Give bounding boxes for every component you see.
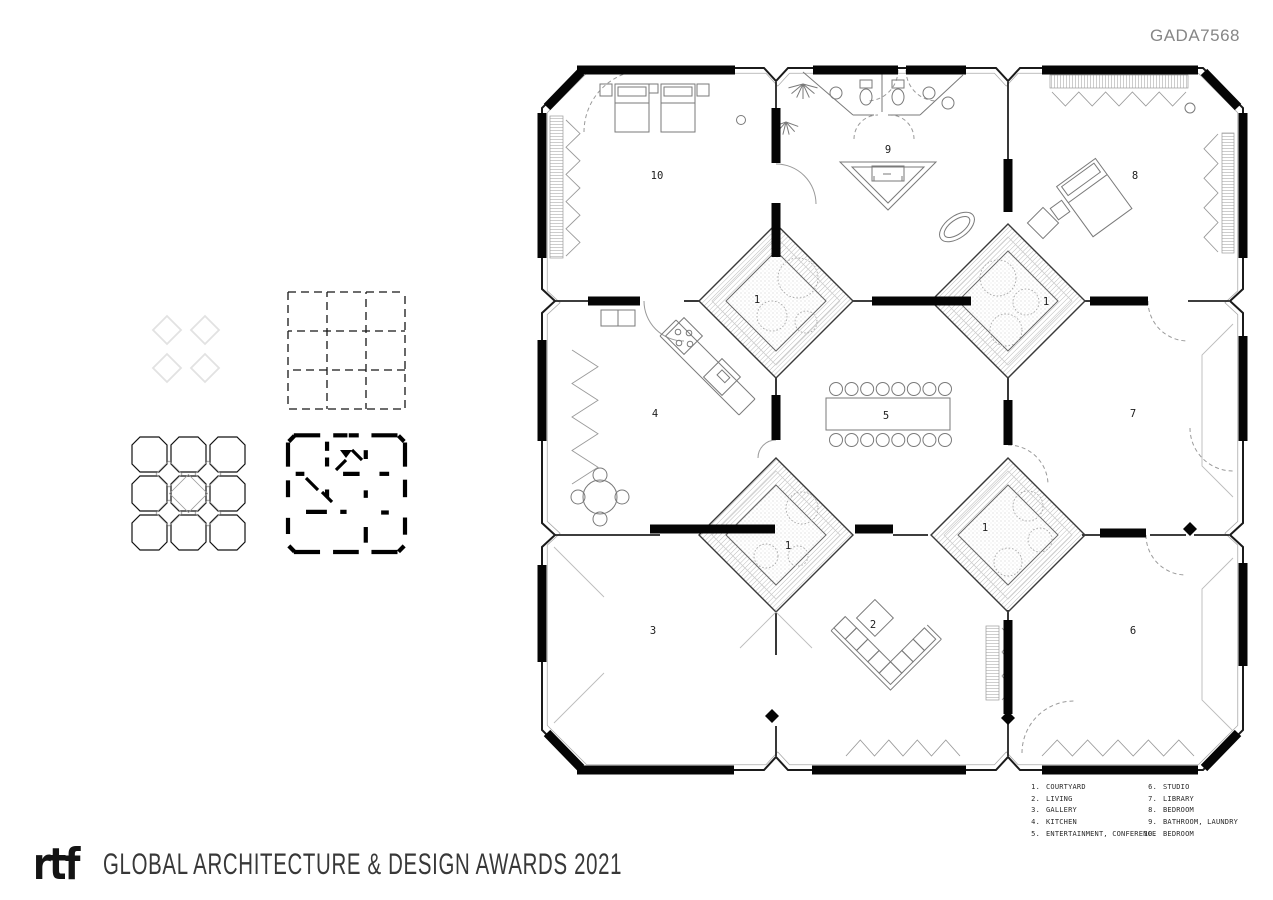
legend-item-label: LIVING — [1046, 794, 1073, 806]
room-label: 7 — [1130, 408, 1136, 420]
legend-item-label: LIBRARY — [1163, 794, 1194, 806]
room-label: 9 — [885, 144, 891, 156]
legend-column: 6.STUDIO7.LIBRARY8.BEDROOM9.BATHROOM, LA… — [1141, 782, 1238, 840]
rtf-logo: rtf — [33, 841, 79, 889]
legend-item: 7.LIBRARY — [1141, 794, 1238, 806]
legend-item-number: 1. — [1024, 782, 1040, 794]
legend-item: 4.KITCHEN — [1024, 817, 1156, 829]
legend-item-number: 5. — [1024, 829, 1040, 841]
room-label: 3 — [650, 625, 656, 637]
legend-item-label: GALLERY — [1046, 805, 1077, 817]
legend-item-label: STUDIO — [1163, 782, 1190, 794]
legend-item-label: BEDROOM — [1163, 829, 1194, 841]
room-label: 10 — [651, 170, 664, 182]
legend-item-number: 7. — [1141, 794, 1157, 806]
legend-item-label: BATHROOM, LAUNDRY — [1163, 817, 1238, 829]
legend-item: 8.BEDROOM — [1141, 805, 1238, 817]
legend-item-label: ENTERTAINMENT, CONFERENCE — [1046, 829, 1156, 841]
room-label: 2 — [870, 619, 876, 631]
diagram-courtyard-diamonds-icon — [153, 316, 219, 382]
presentation-board: GADA7568 — [0, 0, 1273, 900]
legend-item: 5.ENTERTAINMENT, CONFERENCE — [1024, 829, 1156, 841]
floor-plan-drawing: 10984573261111 — [0, 0, 1273, 900]
legend-item-number: 10. — [1141, 829, 1157, 841]
room-label: 5 — [883, 410, 889, 422]
legend-item-number: 4. — [1024, 817, 1040, 829]
award-title: GLOBAL ARCHITECTURE & DESIGN AWARDS 2021 — [103, 848, 622, 882]
legend-item: 3.GALLERY — [1024, 805, 1156, 817]
room-label: 8 — [1132, 170, 1138, 182]
legend-item: 2.LIVING — [1024, 794, 1156, 806]
legend-item-number: 8. — [1141, 805, 1157, 817]
legend-item-label: COURTYARD — [1046, 782, 1086, 794]
diagram-plan-grid-icon — [132, 437, 245, 550]
folding-door-lines — [566, 92, 1218, 756]
legend-item-number: 2. — [1024, 794, 1040, 806]
room-label: 1 — [982, 522, 988, 534]
courtyard-diamonds — [699, 224, 1085, 612]
legend-column: 1.COURTYARD2.LIVING3.GALLERY4.KITCHEN5.E… — [1024, 782, 1156, 840]
legend-item: 9.BATHROOM, LAUNDRY — [1141, 817, 1238, 829]
legend-item: 10.BEDROOM — [1141, 829, 1238, 841]
legend-item: 1.COURTYARD — [1024, 782, 1156, 794]
room-label: 1 — [754, 294, 760, 306]
legend-item-label: BEDROOM — [1163, 805, 1194, 817]
legend-item-label: KITCHEN — [1046, 817, 1077, 829]
room-number-labels: 10984573261111 — [650, 144, 1138, 637]
diagram-wall-fragments-icon — [288, 435, 405, 552]
legend-item-number: 6. — [1141, 782, 1157, 794]
furniture-layer — [550, 72, 1234, 700]
room-label: 4 — [652, 408, 658, 420]
legend-item-number: 3. — [1024, 805, 1040, 817]
legend-item: 6.STUDIO — [1141, 782, 1238, 794]
room-label: 1 — [1043, 296, 1049, 308]
diagram-dashed-grid-icon — [288, 292, 405, 409]
room-label: 6 — [1130, 625, 1136, 637]
room-label: 1 — [785, 540, 791, 552]
board-footer: rtf GLOBAL ARCHITECTURE & DESIGN AWARDS … — [33, 841, 866, 889]
legend-item-number: 9. — [1141, 817, 1157, 829]
